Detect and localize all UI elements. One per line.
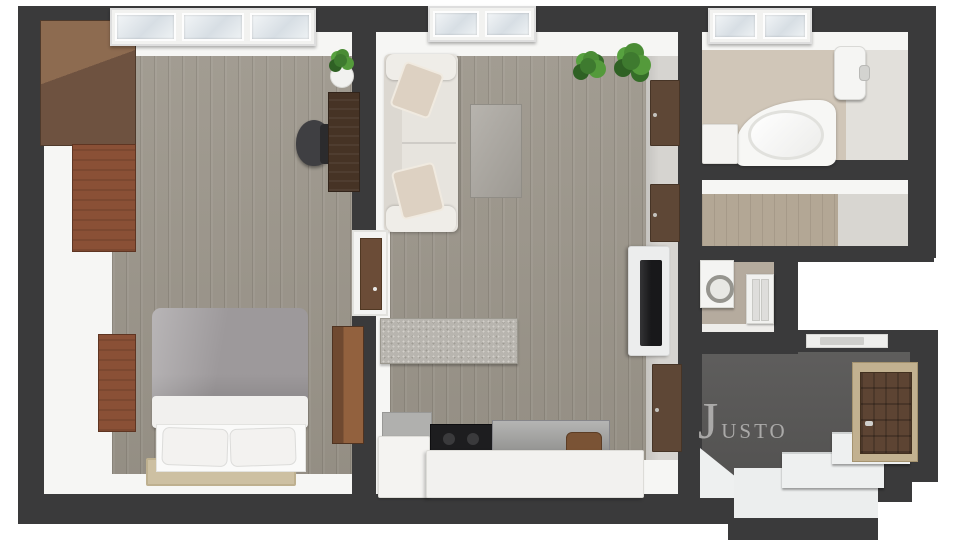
bedroom-door [360,238,382,310]
side-cabinet [332,326,364,444]
wc-door-slat [761,279,769,321]
entry-north-wall-top [806,334,888,348]
burner [443,433,455,445]
bathroom-window [708,8,812,44]
window-pane [433,11,479,37]
wall-entry-south-bump [728,516,878,540]
front-door [860,372,912,454]
floor-plan-render: Justo [0,0,960,540]
wall-hallway-south [702,246,934,262]
window-pane [485,11,531,37]
bathtub-basin [748,110,824,160]
wall-top-inset [820,337,864,345]
wc-door-slat [752,279,760,321]
desk-plant [334,54,347,67]
washer-door [706,275,734,303]
washing-machine [700,260,734,308]
plant-right [622,52,640,70]
window-pane [250,13,311,41]
wc-door [746,274,774,324]
wall-door-panel-1 [650,80,680,146]
kitchen-island [426,450,644,498]
window-pane [115,13,176,41]
wall-east-upper [908,6,936,258]
bed-duvet [152,308,308,402]
water-heater [834,46,866,100]
nightstand [98,334,136,432]
window-pane [713,13,757,39]
sofa [384,54,458,232]
door-handle [373,287,377,291]
wall-door-panel-2 [650,184,680,242]
wall-wc-south [696,332,798,354]
bedroom-window [110,8,316,46]
pillow-right [229,427,296,467]
burner [467,433,479,445]
front-door-handle [865,421,873,426]
desk [328,92,360,192]
window-pane [182,13,243,41]
double-bed [152,308,308,468]
door-handle [653,113,657,117]
living-room-window [428,6,536,42]
heater-valve [859,65,870,81]
sideboard [380,318,518,364]
bath-cabinet [702,124,738,164]
plant-left [580,58,596,74]
wall-door-panel-3 [652,364,682,452]
watermark: Justo [698,396,848,456]
door-handle [655,408,659,412]
tv [640,260,662,346]
wall-south [18,494,706,524]
kitchen-cabinet-white [378,436,430,498]
window-pane [763,13,807,39]
pillow-left [161,427,228,467]
sofa-cushion-seam [402,142,456,144]
hallway-side-wall-face [838,194,908,246]
plant-pot [330,64,354,88]
wardrobe-cherry [72,144,136,252]
coffee-table [470,104,522,198]
door-handle [653,213,657,217]
hallway-floor [702,194,838,246]
